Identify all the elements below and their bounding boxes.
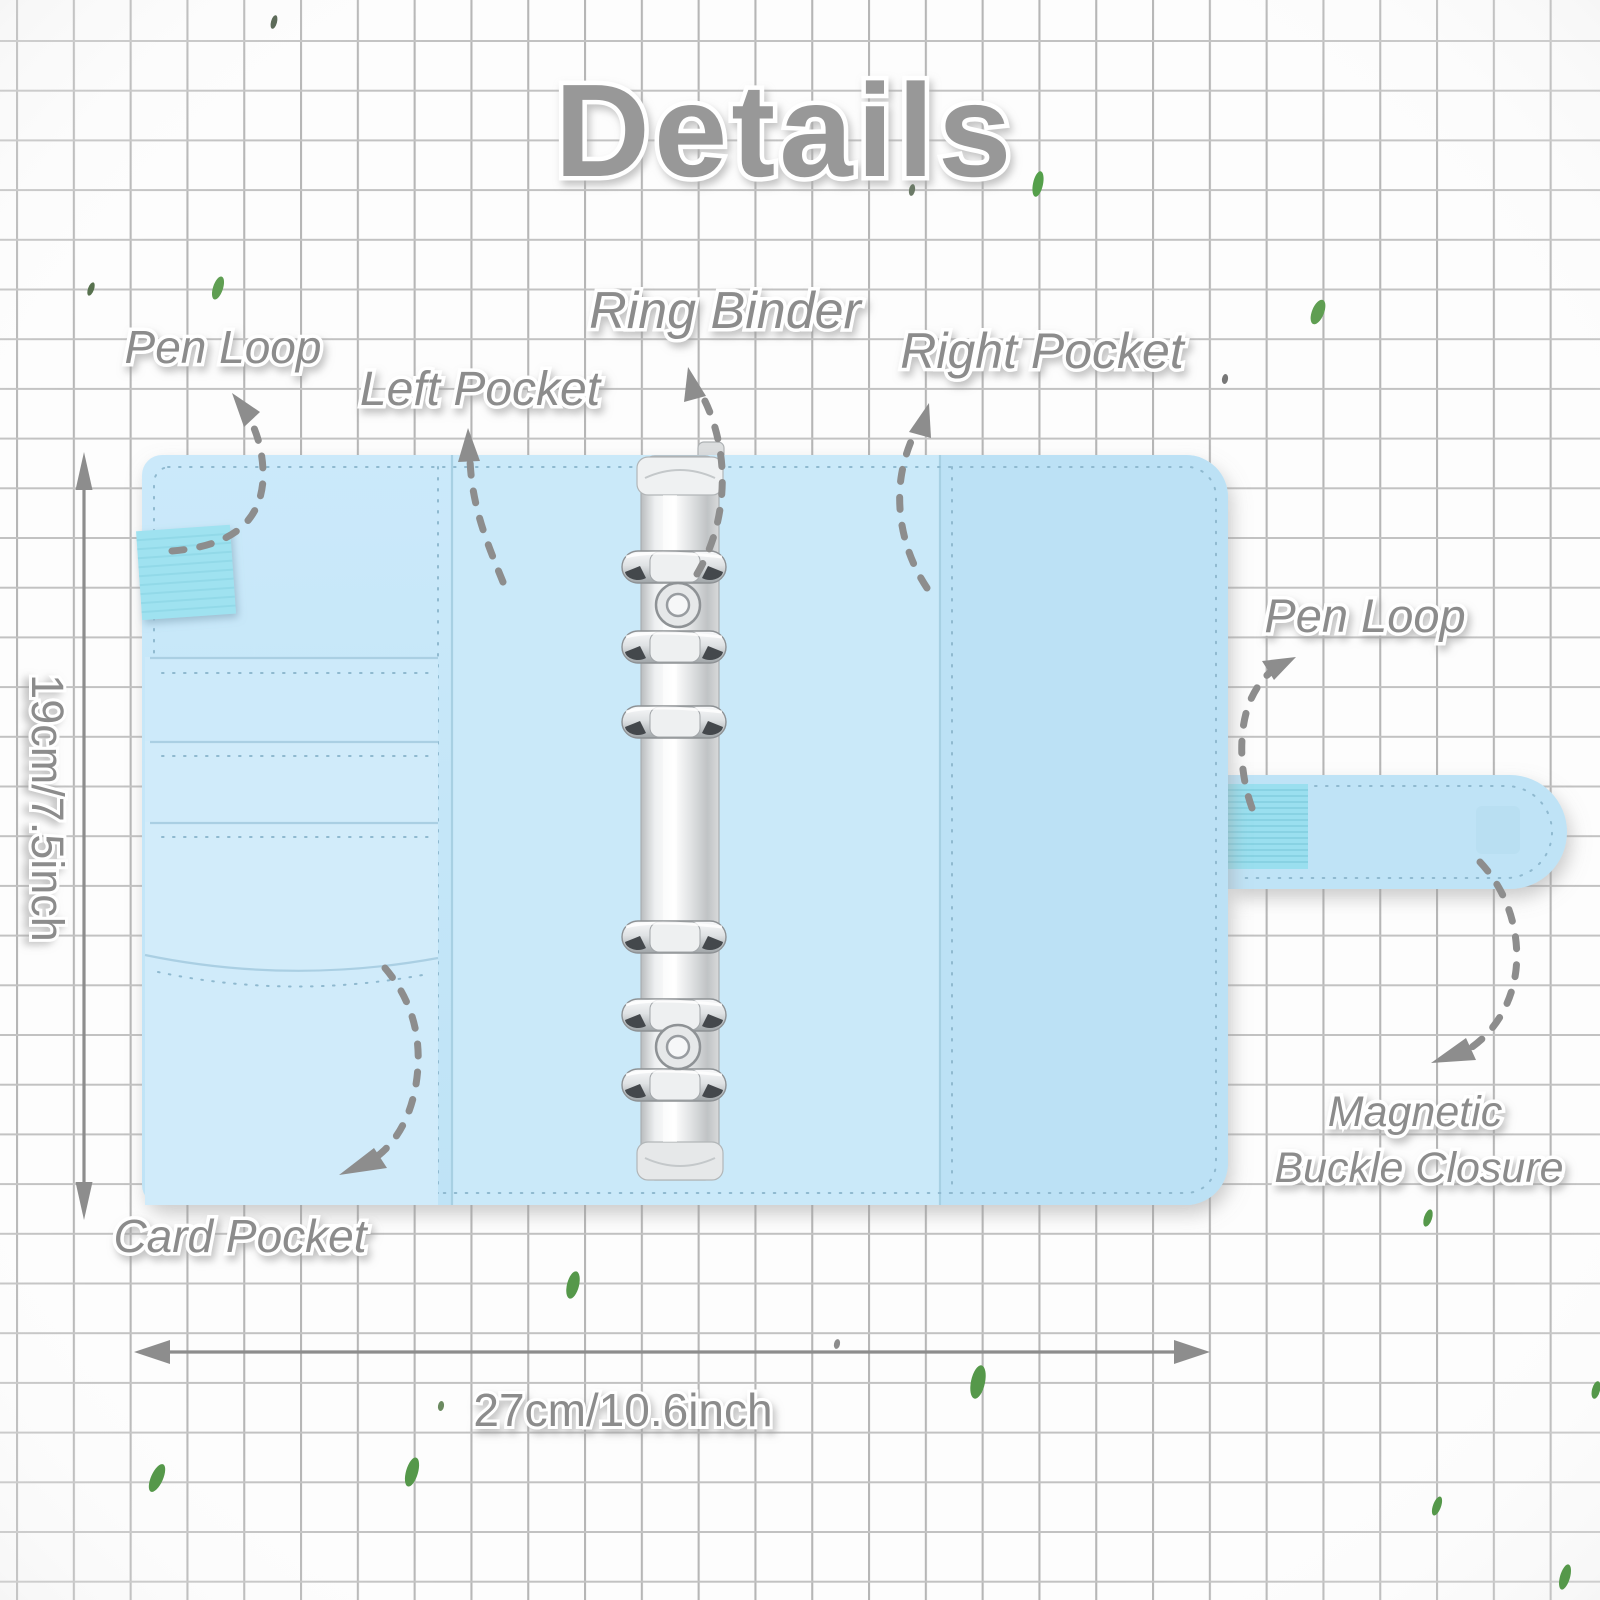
svg-text:Details: Details [555,57,1016,204]
svg-text:Magnetic: Magnetic [1328,1088,1503,1136]
svg-text:27cm/10.6inch: 27cm/10.6inch [473,1384,772,1436]
svg-text:Buckle Closure: Buckle Closure [1274,1144,1563,1192]
svg-text:Pen Loop: Pen Loop [1264,589,1465,642]
svg-text:Ring Binder: Ring Binder [589,282,863,340]
svg-text:Pen Loop: Pen Loop [125,321,322,373]
svg-text:19cm/7.5inch: 19cm/7.5inch [22,674,73,942]
svg-text:Left Pocket: Left Pocket [360,363,602,416]
svg-text:Right Pocket: Right Pocket [900,323,1186,379]
svg-text:Card Pocket: Card Pocket [113,1210,368,1262]
